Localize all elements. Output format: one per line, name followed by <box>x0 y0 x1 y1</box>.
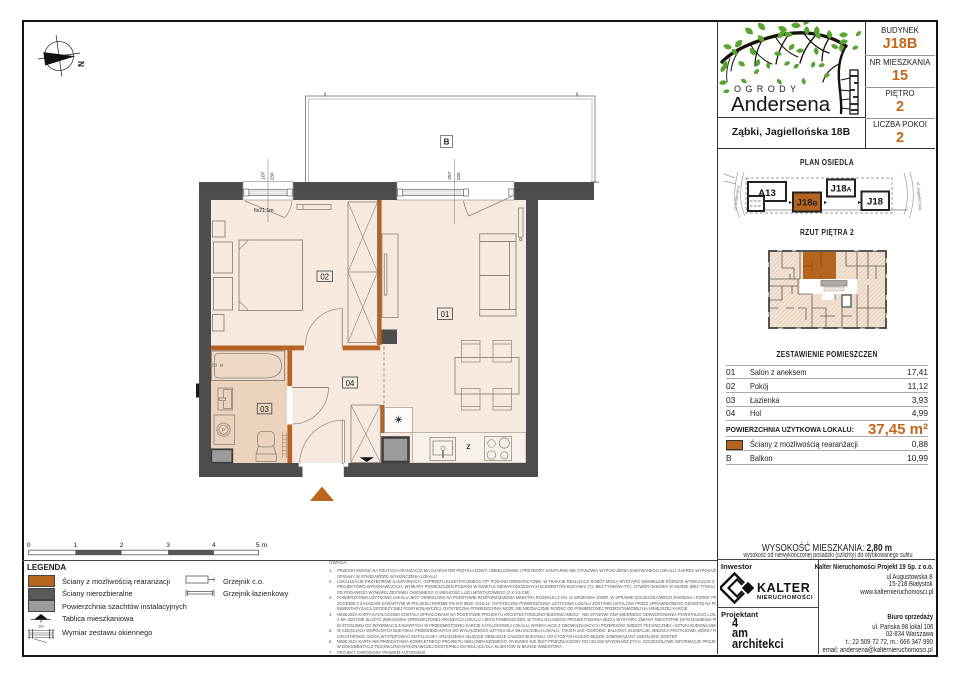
svg-text:A13: A13 <box>758 188 776 199</box>
svg-text:ul. Jagiellońska: ul. Jagiellońska <box>916 181 924 211</box>
svg-text:J18: J18 <box>867 197 884 208</box>
svg-text:ul. Andersena: ul. Andersena <box>732 184 740 211</box>
